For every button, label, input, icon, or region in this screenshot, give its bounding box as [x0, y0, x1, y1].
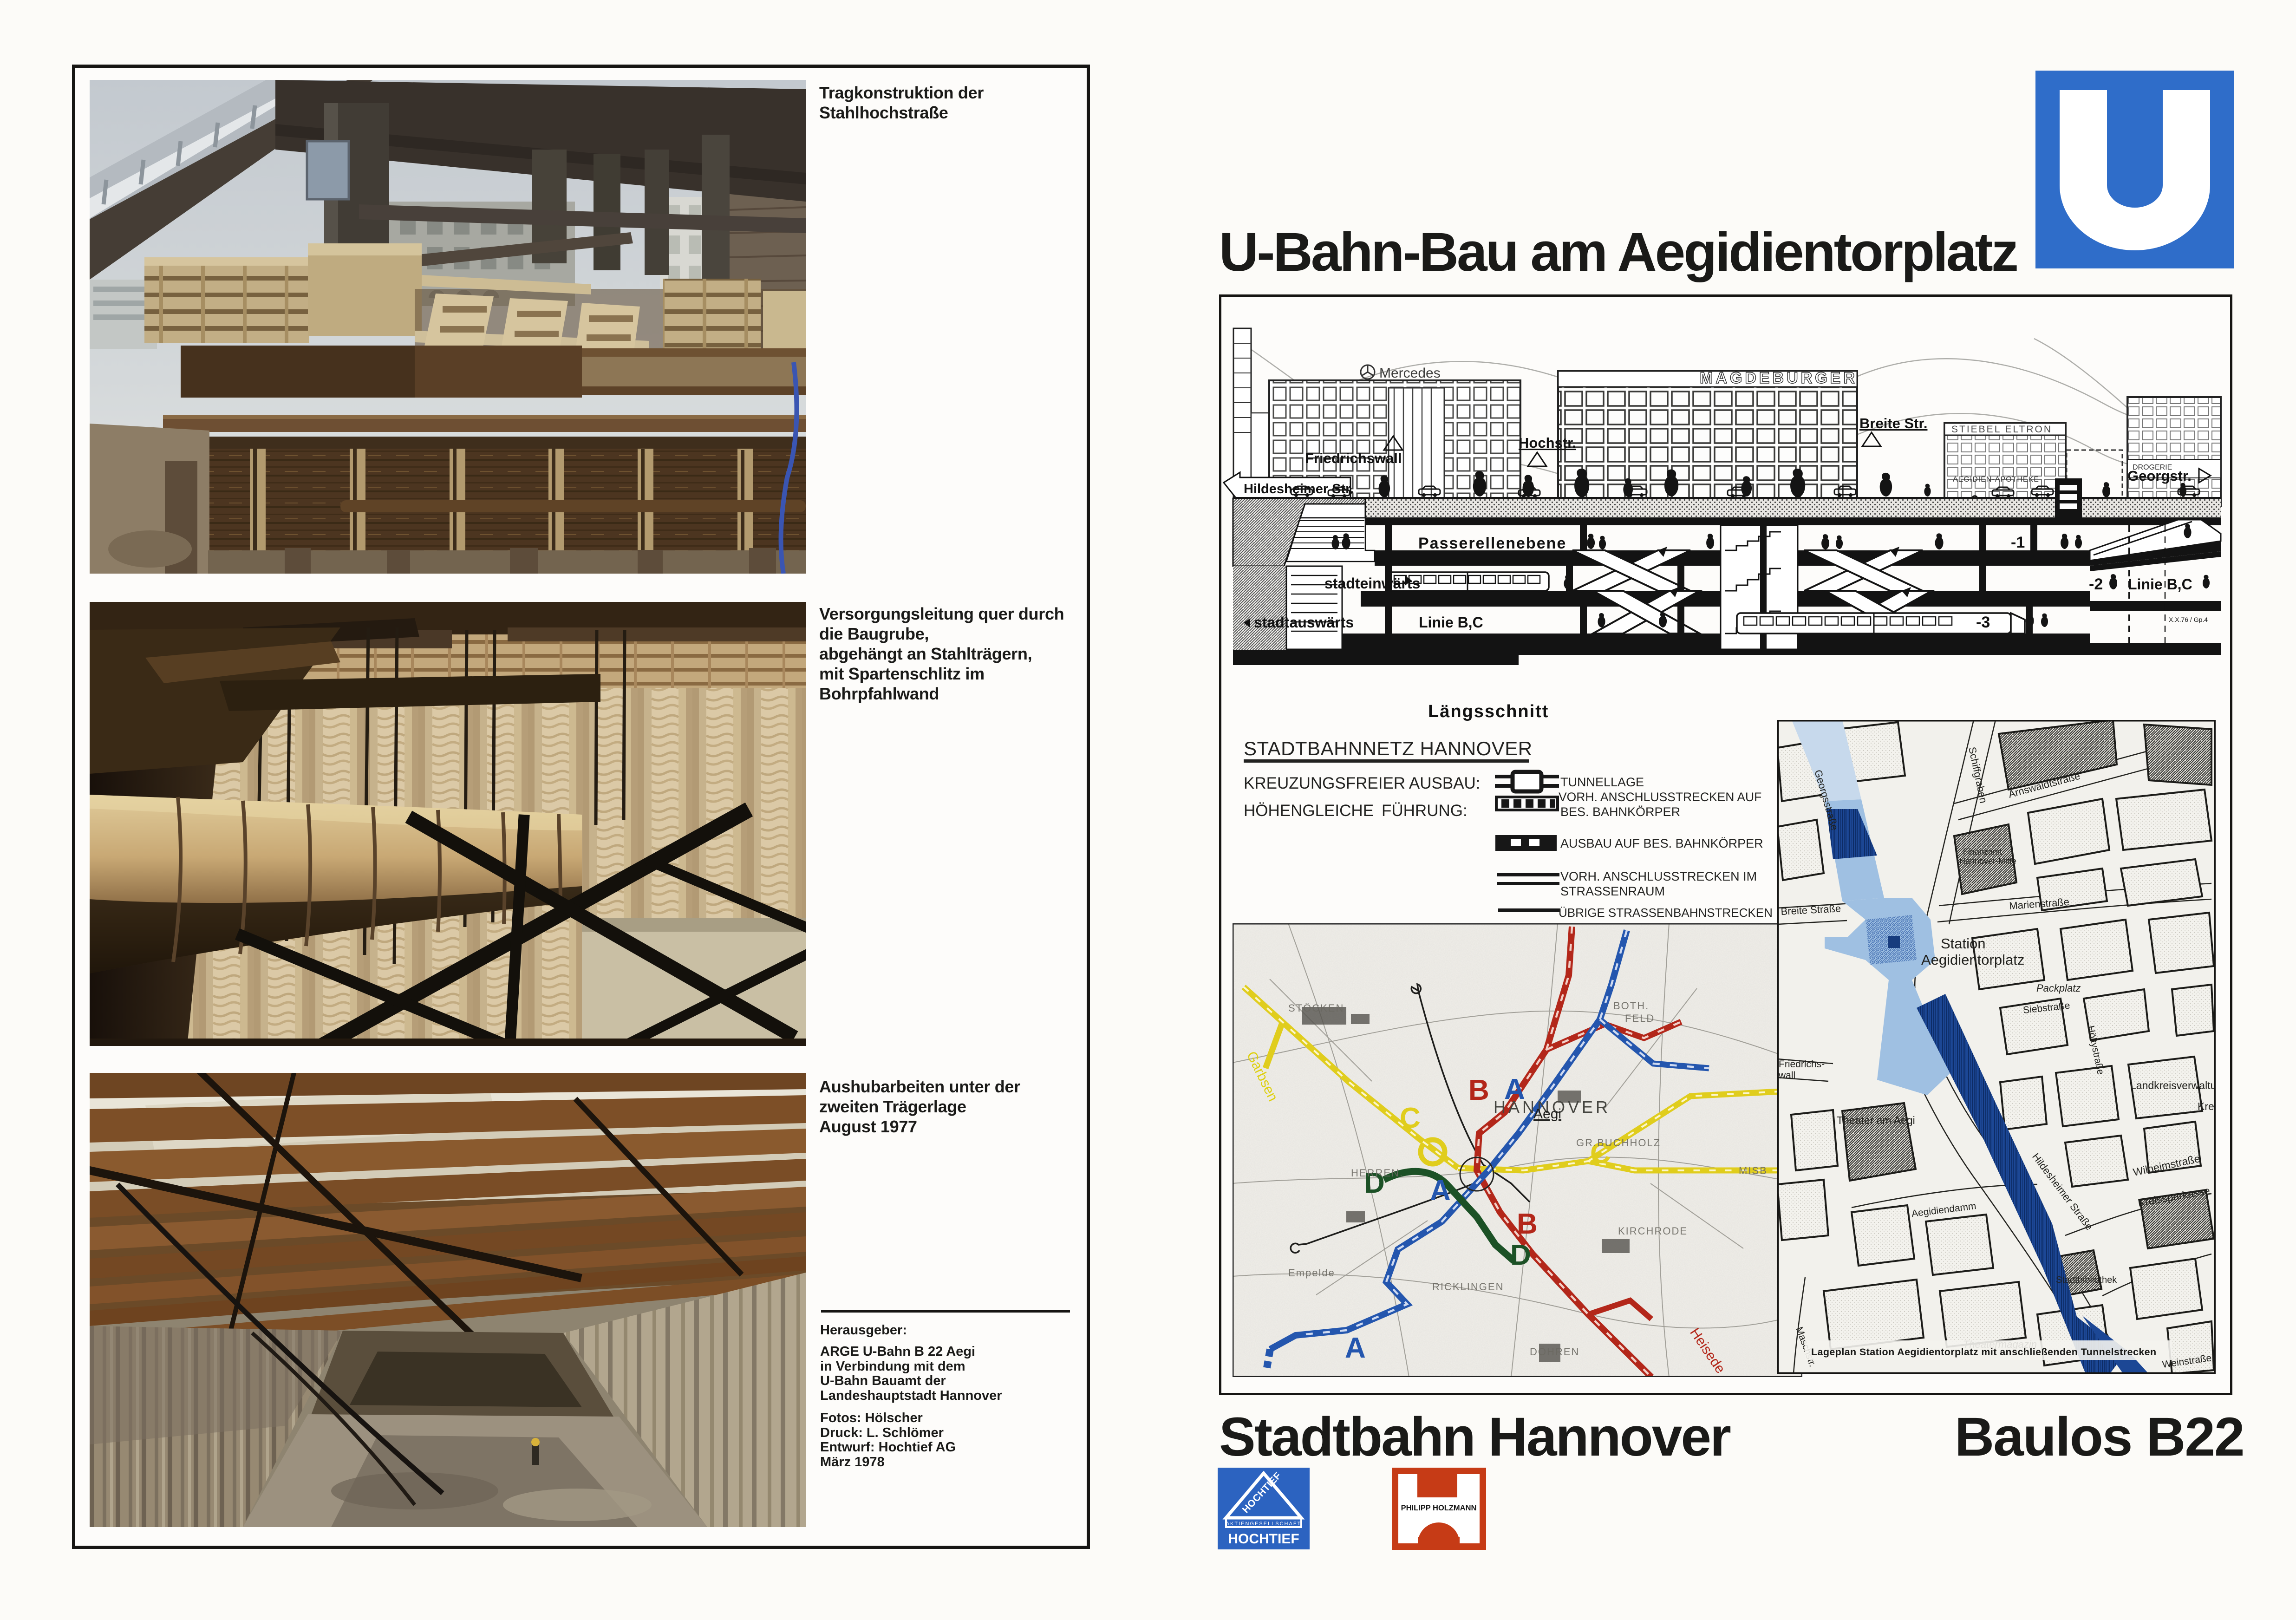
svg-text:Längsschnitt: Längsschnitt — [1428, 702, 1549, 721]
svg-text:Kreist: Kreist — [2198, 1100, 2216, 1112]
svg-text:Lageplan Station Aegidientorpl: Lageplan Station Aegidientorplatz mit an… — [1811, 1346, 2157, 1358]
svg-text:RICKLINGEN: RICKLINGEN — [1432, 1281, 1504, 1293]
svg-text:Packplatz: Packplatz — [2036, 982, 2081, 994]
svg-text:FÜHRUNG:: FÜHRUNG: — [1382, 802, 1468, 820]
svg-text:Stadtbibliothek: Stadtbibliothek — [2056, 1275, 2117, 1285]
svg-text:BES. BAHNKÖRPER: BES. BAHNKÖRPER — [1560, 805, 1680, 819]
svg-text:STADTBAHNNETZ HANNOVER: STADTBAHNNETZ HANNOVER — [1244, 738, 1533, 759]
svg-text:STRASSENRAUM: STRASSENRAUM — [1560, 884, 1665, 898]
svg-text:MAGDEBURGER: MAGDEBURGER — [1700, 369, 1858, 387]
svg-text:D: D — [1510, 1239, 1531, 1271]
svg-text:Hannover-Mitte: Hannover-Mitte — [1959, 856, 2016, 866]
svg-text:X.X.76 / Gp.4: X.X.76 / Gp.4 — [2169, 616, 2208, 623]
svg-text:Mercedes: Mercedes — [1379, 366, 1441, 381]
svg-text:PHILIPP HOLZMANN: PHILIPP HOLZMANN — [1401, 1504, 1477, 1512]
svg-text:GR.BUCHHOLZ: GR.BUCHHOLZ — [1576, 1137, 1661, 1149]
svg-text:Station: Station — [1941, 935, 1986, 952]
svg-text:C: C — [1400, 1102, 1421, 1134]
svg-text:Linie B,C: Linie B,C — [1419, 614, 1483, 631]
svg-text:B: B — [1468, 1074, 1489, 1106]
svg-text:DÖHREN: DÖHREN — [1530, 1346, 1579, 1358]
svg-text:B: B — [1517, 1208, 1538, 1240]
svg-text:BOTH.: BOTH. — [1613, 1000, 1649, 1012]
svg-text:STÖCKEN: STÖCKEN — [1288, 1002, 1344, 1014]
svg-text:-3: -3 — [1976, 614, 1990, 631]
svg-text:HERREN.: HERREN. — [1351, 1167, 1403, 1179]
svg-text:VORH. ANSCHLUSSTRECKEN AUF: VORH. ANSCHLUSSTRECKEN AUF — [1559, 790, 1761, 804]
svg-text:Linie B,C: Linie B,C — [2128, 576, 2192, 593]
svg-text:A: A — [1345, 1332, 1366, 1364]
svg-text:HÖHENGLEICHE: HÖHENGLEICHE — [1244, 802, 1374, 820]
svg-text:AEGIDIEN-APOTHEKE: AEGIDIEN-APOTHEKE — [1953, 476, 2039, 483]
svg-text:MISB: MISB — [1739, 1165, 1768, 1176]
svg-text:A: A — [1430, 1175, 1451, 1207]
svg-text:Friedrichswall: Friedrichswall — [1305, 450, 1402, 466]
svg-text:Georgstr.: Georgstr. — [2127, 468, 2192, 484]
svg-text:Aegidientorplatz: Aegidientorplatz — [1921, 952, 2024, 968]
svg-text:Breite Str.: Breite Str. — [1859, 415, 1927, 431]
svg-text:TUNNELLAGE: TUNNELLAGE — [1560, 775, 1644, 789]
svg-text:Empelde: Empelde — [1288, 1267, 1335, 1279]
svg-text:FELD: FELD — [1625, 1012, 1655, 1024]
svg-text:stadtauswärts: stadtauswärts — [1254, 614, 1354, 631]
svg-text:AUSBAU AUF BES. BAHNKÖRPER: AUSBAU AUF BES. BAHNKÖRPER — [1560, 836, 1763, 850]
svg-text:AKTIENGESELLSCHAFT: AKTIENGESELLSCHAFT — [1226, 1521, 1302, 1527]
svg-text:Hochstr.: Hochstr. — [1519, 435, 1576, 451]
svg-text:HOCHTIEF: HOCHTIEF — [1228, 1531, 1299, 1547]
svg-text:Finanzamt: Finanzamt — [1963, 847, 2002, 856]
svg-text:Theater am Aegi: Theater am Aegi — [1837, 1114, 1915, 1126]
svg-text:wall: wall — [1778, 1070, 1795, 1081]
svg-text:-1: -1 — [2011, 534, 2025, 551]
svg-text:KREUZUNGSFREIER AUSBAU:: KREUZUNGSFREIER AUSBAU: — [1244, 774, 1481, 792]
svg-text:Aegi: Aegi — [1533, 1106, 1561, 1122]
svg-text:-2: -2 — [2089, 575, 2103, 593]
svg-text:STIEBEL ELTRON: STIEBEL ELTRON — [1951, 424, 2052, 435]
svg-text:KIRCHRODE: KIRCHRODE — [1618, 1225, 1688, 1237]
svg-text:VORH. ANSCHLUSSTRECKEN IM: VORH. ANSCHLUSSTRECKEN IM — [1560, 869, 1757, 883]
svg-text:Friedrichs-: Friedrichs- — [1779, 1059, 1825, 1070]
svg-text:Landkreisverwaltung: Landkreisverwaltung — [2130, 1079, 2216, 1091]
svg-text:Passerellenebene: Passerellenebene — [1418, 535, 1566, 552]
svg-text:ÜBRIGE STRASSENBAHNSTRECKEN: ÜBRIGE STRASSENBAHNSTRECKEN — [1559, 906, 1773, 920]
